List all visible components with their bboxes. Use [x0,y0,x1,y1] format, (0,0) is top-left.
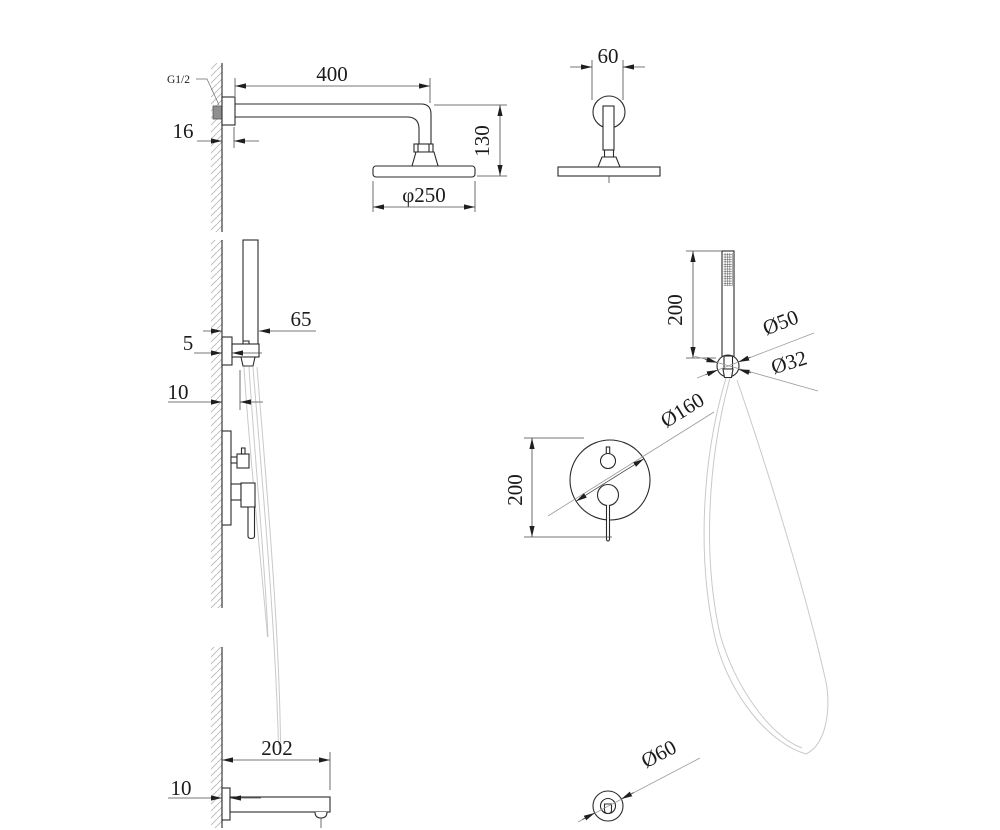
mixer-trim-plate-side [222,431,231,525]
dim-label-flange-width: 60 [598,44,619,68]
dim-label-nut-diameter: Ø32 [768,346,810,380]
holder-body [232,344,259,357]
technical-drawing-page: G1/2 400 130 16 φ250 60 [0,0,1000,830]
dim-arrow-cone-right [738,357,750,362]
dim-label-handle-length: 200 [663,294,687,326]
dim-label-holder-depth: 65 [291,307,312,331]
spout-front-view: Ø60 [578,735,700,822]
diverter-knob-side [237,454,249,468]
diverter-knob [601,454,616,469]
diverter-stem-link [231,457,237,463]
thread-nipple [213,106,222,119]
arm-nut [414,144,433,152]
dim-ext-handle-length [686,251,722,358]
dim-label-wall-offset: 16 [173,119,194,143]
dim-label-cone-diameter: Ø50 [759,305,801,340]
dim-arrow-outlet-left [582,813,594,820]
lever-hub [598,485,619,506]
hand-shower-holder-side-view: 65 5 10 [168,240,317,745]
dim-arrow-outlet-right [621,793,633,800]
shower-head-edge [558,167,660,176]
hose-nut [723,369,733,378]
lever-handle [607,505,610,541]
shower-arm-outer [235,104,431,144]
shower-system-drawing: G1/2 400 130 16 φ250 60 [0,0,1000,830]
lever-collar [231,484,241,500]
dim-label-head-diameter: φ250 [402,183,446,207]
spout-outlet-dome [315,812,327,818]
dim-label-plate-diameter: Ø160 [656,388,708,433]
dim-label-drop-height: 130 [470,125,494,157]
spout-flange [222,788,230,820]
head-cone [412,152,438,166]
hose-outlet [241,357,255,366]
dim-arrow-nut-right [739,369,752,373]
shower-arm-inner [235,117,419,144]
dim-arrow-nut-left [705,359,718,363]
wall-hatch [211,647,222,828]
lever-body [241,483,255,507]
wall-hatch [211,240,222,608]
wall-flange [222,97,235,125]
spray-face [724,253,733,286]
shower-head [373,166,475,177]
dim-label-outlet-diameter: Ø60 [637,735,680,773]
dim-label-spout-length: 202 [261,736,293,760]
hand-shower-front-view: 200 Ø50 Ø32 [663,251,828,754]
dim-label-thread: G1/2 [167,74,190,86]
arm-nut-front [605,150,614,157]
hand-shower-handle-side [243,240,258,348]
dim-label-outlet-offset: 10 [168,380,189,404]
dim-label-plate-offset: 5 [183,331,194,355]
diverter-pin [242,448,246,454]
wall-hatch [211,63,222,232]
dim-label-flange-depth: 10 [171,776,192,800]
lever-handle-side [248,507,255,539]
dim-label-arm-length: 400 [316,62,348,86]
overhead-shower-front-view: 60 [558,44,660,183]
spout-body [230,797,330,812]
dim-line-outlet-diameter [578,758,700,822]
holder-wall-plate [222,337,232,365]
overhead-shower-side-view: G1/2 400 130 16 φ250 [167,62,507,232]
spout-side-view: 202 10 [168,647,330,828]
dim-arrow-cone-left [706,370,718,375]
head-cone-front [598,157,620,167]
shower-hose-loop [704,378,828,754]
mixer-front-view: 200 Ø160 [503,388,714,541]
shower-hose-side [244,367,281,745]
dim-label-body-height: 200 [503,474,527,506]
arm-front [603,106,614,150]
